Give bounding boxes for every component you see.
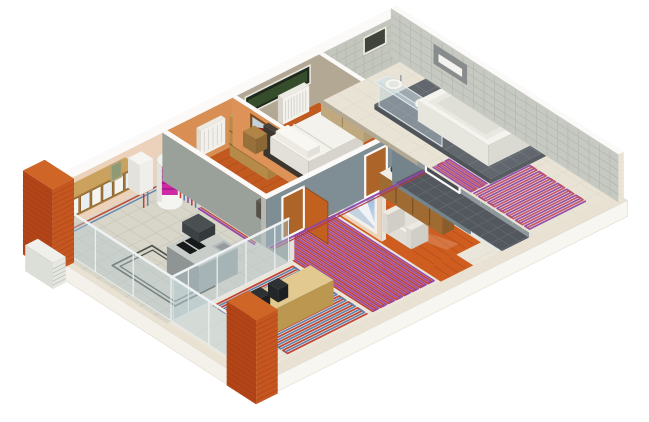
apartment-cutaway-figure	[0, 0, 649, 422]
apartment-cutaway-illustration	[0, 0, 649, 422]
brick-pillar-south	[227, 291, 278, 405]
